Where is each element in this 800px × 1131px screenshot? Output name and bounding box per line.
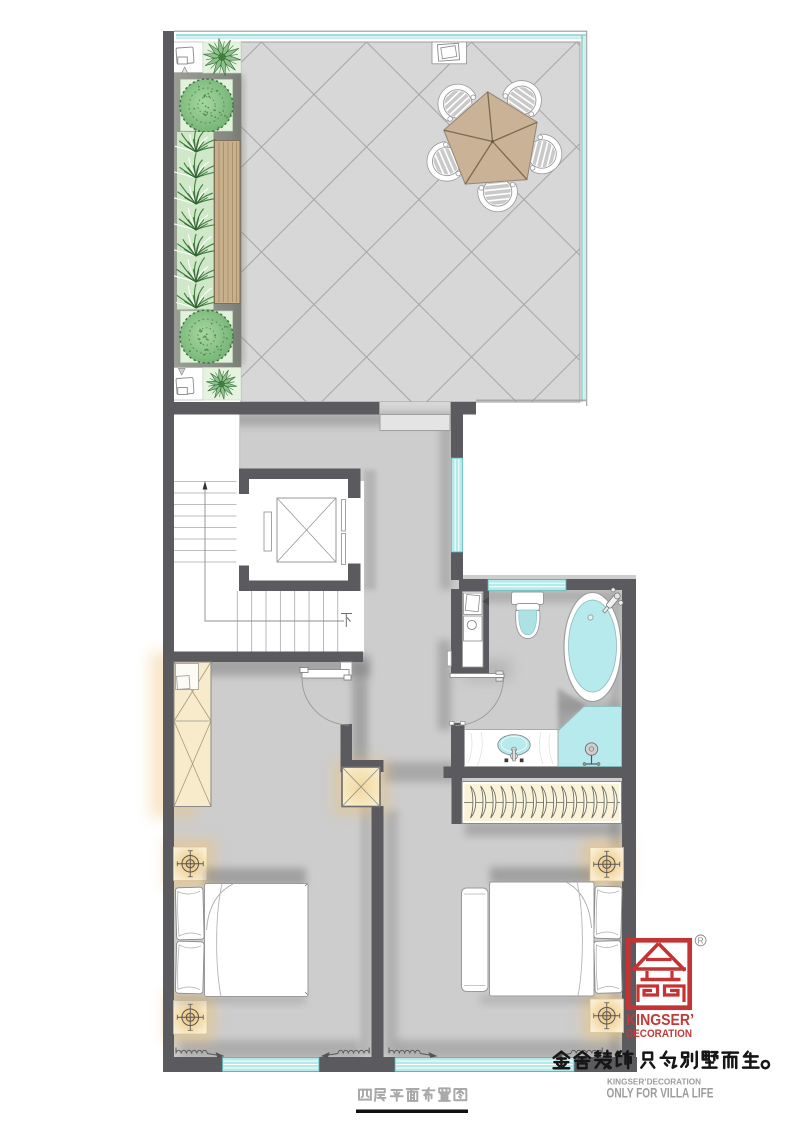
svg-text:DECORATION: DECORATION [626,1028,692,1040]
svg-text:KINGSER’: KINGSER’ [626,1012,694,1029]
svg-text:R: R [698,936,704,946]
svg-text:ONLY FOR VILLA LIFE: ONLY FOR VILLA LIFE [607,1086,714,1101]
